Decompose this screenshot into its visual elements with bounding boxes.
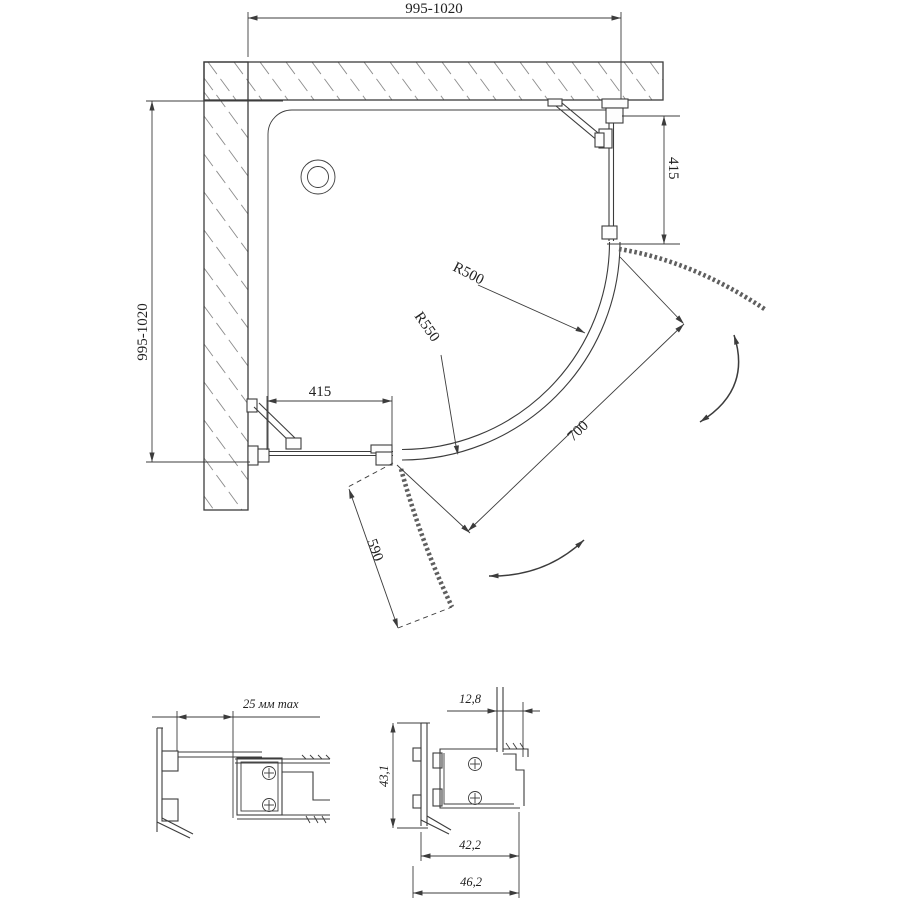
screw-icon: [469, 758, 482, 771]
width-inner-label: 42,2: [459, 838, 481, 852]
dim-depth-left-label: 995-1020: [135, 303, 151, 361]
glass-offset-label: 12,8: [459, 692, 482, 706]
door-bottom-glass: [401, 469, 452, 607]
dim-panel-bottom-label: 415: [309, 384, 332, 400]
shower-enclosure-drawing: 995-1020 995-1020 415 415 R500 R550: [0, 0, 900, 900]
profile-height-label: 43,1: [377, 765, 391, 787]
dim-width-top-label: 995-1020: [405, 1, 463, 17]
detail-wall-profile: 25 мм max: [152, 697, 330, 838]
swing-arrow-right: [699, 334, 740, 424]
wall-gap-label: 25 мм max: [243, 697, 299, 711]
door-right-open: [619, 249, 766, 326]
fixed-panel-right: [548, 99, 628, 241]
dim-panel-right-label: 415: [665, 157, 681, 180]
support-brace-bottom: [247, 399, 301, 449]
dim-panel-right: 415: [607, 116, 681, 244]
hinge-top-right: [602, 99, 628, 108]
radius-outer-label: R550: [411, 309, 443, 345]
screw-icon: [263, 767, 276, 780]
dim-opening-label: 700: [565, 418, 592, 445]
detail-corner-profile: 12,8 43,1: [377, 687, 540, 898]
dim-opening: 700: [466, 322, 686, 533]
screw-icon: [469, 792, 482, 805]
support-brace-right: [548, 99, 604, 147]
fixed-panel-bottom: [247, 399, 393, 465]
wall-top: [204, 62, 663, 100]
dim-door-label: 590: [363, 537, 386, 564]
drain-outer-circle: [301, 160, 335, 194]
dim-width-top: 995-1020: [248, 1, 621, 99]
hinge-right-lower: [602, 226, 617, 239]
drain-inner-circle: [308, 167, 329, 188]
swing-arrow-bottom: [489, 538, 586, 579]
width-outer-label: 46,2: [460, 875, 482, 889]
dim-door: 590: [347, 488, 401, 629]
dim-depth-left: 995-1020: [135, 101, 283, 462]
dim-radius-outer: R550: [411, 309, 461, 455]
screw-icon: [263, 799, 276, 812]
radius-inner-label: R500: [450, 259, 486, 288]
dim-radius-inner: R500: [450, 259, 586, 335]
drawing-canvas: 995-1020 995-1020 415 415 R500 R550: [0, 0, 900, 900]
